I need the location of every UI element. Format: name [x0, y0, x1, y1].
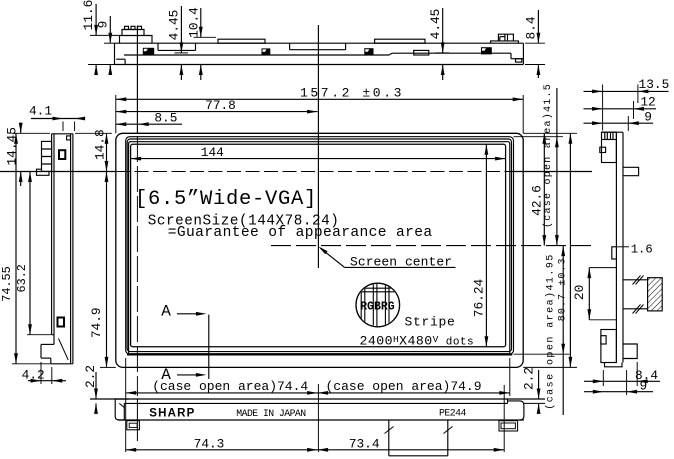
svg-text:=Guarantee of appearance area: =Guarantee of appearance area — [168, 225, 433, 241]
svg-text:RGBRG: RGBRG — [360, 300, 395, 313]
svg-text:8.4: 8.4 — [523, 16, 538, 39]
svg-text:MADE IN JAPAN: MADE IN JAPAN — [236, 408, 306, 419]
svg-text:144: 144 — [201, 145, 224, 160]
svg-text:4.45: 4.45 — [428, 9, 443, 40]
svg-text:(case open area)41.5: (case open area)41.5 — [542, 83, 554, 228]
svg-text:14.8: 14.8 — [93, 129, 108, 160]
svg-text:A: A — [161, 303, 171, 321]
svg-text:76.24: 76.24 — [472, 278, 487, 317]
svg-text:9: 9 — [644, 110, 652, 125]
svg-text:4.1: 4.1 — [29, 104, 52, 119]
svg-text:80.7 ±0.3: 80.7 ±0.3 — [558, 257, 569, 321]
svg-text:8.5: 8.5 — [154, 111, 177, 126]
svg-text:13.5: 13.5 — [639, 77, 670, 92]
svg-text:20: 20 — [572, 285, 587, 300]
svg-text:PE244: PE244 — [439, 407, 467, 418]
svg-text:(case open area)74.4: (case open area)74.4 — [152, 379, 308, 394]
svg-text:Stripe: Stripe — [405, 314, 456, 329]
svg-text:73.4: 73.4 — [349, 436, 380, 451]
svg-text:(case open area)41.95: (case open area)41.95 — [545, 253, 557, 409]
svg-text:4.45: 4.45 — [166, 10, 181, 41]
svg-text:2400HX480V dots: 2400HX480V dots — [360, 334, 475, 349]
svg-text:12: 12 — [640, 95, 655, 110]
svg-text:157.2 ±0.3: 157.2 ±0.3 — [300, 85, 404, 100]
svg-text:9: 9 — [96, 21, 111, 29]
svg-text:SHARP: SHARP — [149, 408, 195, 420]
svg-text:1.6: 1.6 — [631, 242, 653, 256]
svg-text:74.3: 74.3 — [194, 436, 225, 451]
svg-text:2.2: 2.2 — [83, 365, 98, 388]
svg-text:9: 9 — [640, 378, 648, 393]
svg-text:2.2: 2.2 — [522, 367, 537, 390]
svg-text:74.55: 74.55 — [0, 266, 14, 301]
svg-text:77.8: 77.8 — [205, 98, 236, 113]
svg-text:11.6: 11.6 — [81, 0, 96, 30]
svg-text:74.9: 74.9 — [89, 307, 104, 338]
svg-text:10.4: 10.4 — [187, 7, 202, 38]
svg-text:63.2: 63.2 — [15, 264, 29, 292]
svg-text:(case open area)74.9: (case open area)74.9 — [326, 379, 482, 394]
svg-text:[6.5”Wide-VGA]: [6.5”Wide-VGA] — [135, 188, 317, 211]
